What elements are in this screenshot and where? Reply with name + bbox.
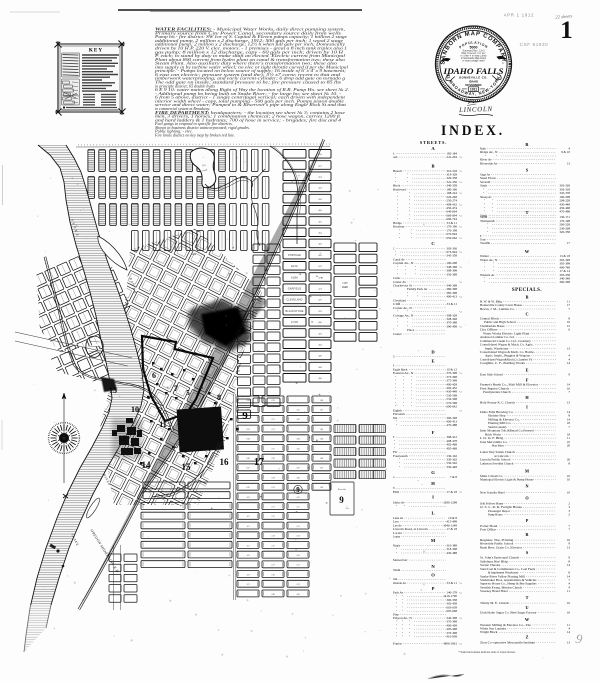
svg-text:650-662: 650-662 [446, 236, 457, 240]
svg-text:U: U [525, 605, 528, 610]
svg-text:1911: 1911 [470, 88, 477, 92]
svg-text:Riverside: Riverside [337, 489, 346, 491]
svg-text:5: 5 [186, 389, 190, 397]
svg-text:CSF 91930: CSF 91930 [520, 42, 549, 47]
svg-text:Map Insured, Inc per: Map Insured, Inc per [462, 52, 486, 55]
svg-text:17 & 18: 17 & 18 [447, 490, 458, 494]
svg-text:7 & 8: 7 & 8 [450, 475, 458, 479]
svg-text:161: 161 [320, 410, 323, 412]
svg-text:15: 15 [182, 462, 192, 472]
svg-text:Pump House: Pump House [488, 513, 503, 517]
svg-text:14: 14 [142, 460, 152, 470]
svg-text:T: T [526, 210, 529, 215]
svg-text:330-448: 330-448 [446, 465, 457, 469]
svg-text:B: B [526, 295, 529, 300]
svg-text:Fire limits district on key ma: Fire limits district on key map by broke… [154, 133, 235, 137]
svg-text:7: 7 [174, 384, 178, 393]
svg-text:C: C [525, 312, 528, 317]
svg-text:G: G [431, 470, 435, 475]
svg-text:F: F [432, 430, 435, 435]
svg-text:1290-1298: 1290-1298 [443, 501, 457, 505]
svg-text:9: 9 [339, 495, 344, 505]
svg-text:Riverside Av: Riverside Av [480, 161, 498, 165]
svg-text:in Ride Linkage Team: in Ride Linkage Team [463, 61, 485, 63]
svg-text:Wright Block: Wright Block [480, 630, 498, 634]
svg-text:8: 8 [217, 393, 221, 402]
svg-text:910-938: 910-938 [446, 635, 457, 639]
svg-text:20: 20 [567, 444, 571, 448]
svg-text:LINCOLN: LINCOLN [458, 106, 493, 114]
svg-text:13: 13 [567, 545, 571, 549]
svg-text:13: 13 [567, 640, 571, 644]
svg-text:Poplar: Poplar [393, 641, 403, 645]
svg-text:Fourteenth: Fourteenth [393, 454, 408, 458]
svg-text:16: 16 [220, 457, 230, 467]
svg-text:5000: 5000 [470, 45, 478, 49]
svg-text:Custer: Custer [393, 332, 403, 336]
svg-text:INDEX.: INDEX. [441, 123, 505, 139]
svg-text:14: 14 [567, 563, 571, 567]
svg-text:N: N [525, 484, 528, 489]
svg-text:17: 17 [254, 457, 264, 468]
svg-text:1: 1 [560, 17, 573, 44]
svg-text:Twelfth: Twelfth [480, 241, 491, 245]
svg-text:W: W [525, 249, 530, 254]
svg-text:405-468: 405-468 [446, 446, 457, 450]
svg-text:ALBA: ALBA [291, 276, 298, 279]
svg-text:PORTAGE: PORTAGE [288, 254, 301, 257]
svg-text:Tenth: Tenth [393, 568, 401, 572]
svg-text:Municipal Electric Light & Pum: Municipal Electric Light & Pump House [480, 478, 534, 482]
svg-text:Boulevard: Boulevard [393, 187, 406, 191]
svg-text:Rush Bros. Grain Co. Elevator: Rush Bros. Grain Co. Elevator [480, 545, 523, 549]
svg-text:BLACKSTONE: BLACKSTONE [285, 310, 303, 313]
svg-text:Sweeney Brand Hotel: Sweeney Brand Hotel [480, 589, 508, 593]
svg-text:IDAHO FALLS: IDAHO FALLS [442, 66, 503, 76]
svg-text:in Summarize Map Comp: in Summarize Map Comp [461, 57, 487, 60]
svg-text:10: 10 [131, 405, 139, 414]
svg-text:Holy Rosary R. C. Church: Holy Rosary R. C. Church [480, 401, 515, 405]
svg-text:CLEVELAND: CLEVELAND [286, 299, 302, 302]
svg-text:P: P [526, 518, 529, 523]
svg-text:131: 131 [271, 507, 274, 509]
svg-text:345-358: 345-358 [446, 254, 457, 258]
svg-text:H: H [431, 481, 435, 486]
svg-text:390-408: 390-408 [446, 324, 457, 328]
svg-text:Place: Place [407, 328, 415, 332]
svg-text:13: 13 [567, 401, 571, 405]
svg-text:470-498: 470-498 [559, 210, 570, 214]
svg-text:17 & 18: 17 & 18 [447, 527, 458, 531]
svg-text:Lomax: Lomax [393, 535, 400, 539]
svg-text:241-294: 241-294 [446, 155, 457, 159]
svg-text:Lutheran Swedish Church: Lutheran Swedish Church [480, 461, 514, 465]
svg-text:Zion Co-operative Mercantile I: Zion Co-operative Mercantile Institute [480, 640, 536, 644]
svg-text:14: 14 [567, 630, 571, 634]
svg-text:APR 1 1912: APR 1 1912 [504, 13, 535, 18]
svg-text:NOVEMBER: NOVEMBER [465, 83, 481, 87]
svg-text:E: E [526, 368, 529, 373]
svg-text:Shoup Av: Shoup Av [480, 195, 492, 199]
svg-text:Trinity M. E. Church: Trinity M. E. Church [480, 601, 509, 605]
svg-text:33 & 11: 33 & 11 [447, 581, 458, 585]
svg-text:11: 11 [159, 420, 167, 429]
svg-text:M: M [525, 469, 529, 474]
svg-text:12: 12 [118, 434, 126, 443]
svg-text:Ash: Ash [393, 155, 398, 159]
svg-text:C: C [431, 241, 434, 246]
svg-text:Western Av: Western Av [480, 273, 495, 277]
svg-text:SPECIALS.: SPECIALS. [512, 288, 542, 293]
svg-text:ELVA: ELVA [291, 265, 298, 268]
svg-text:16: 16 [567, 611, 571, 615]
svg-text:CITY: CITY [342, 282, 348, 285]
svg-text:M: M [431, 538, 436, 543]
svg-text:GARFIELD: GARFIELD [288, 288, 302, 291]
svg-text:400-413: 400-413 [446, 295, 457, 299]
svg-text:360-398: 360-398 [559, 280, 570, 284]
svg-text:16: 16 [567, 601, 571, 605]
svg-text:6: 6 [152, 371, 156, 380]
svg-text:151: 151 [296, 507, 299, 509]
svg-text:430-488: 430-488 [446, 551, 457, 555]
svg-text:E: E [431, 359, 434, 364]
svg-text:Hill: Hill [393, 490, 399, 494]
svg-text:Presbyterian Church: Presbyterian Church [483, 390, 511, 394]
svg-text:Oneida Av: Oneida Av [393, 581, 406, 585]
svg-text:13: 13 [567, 346, 571, 350]
svg-text:11: 11 [567, 589, 570, 593]
svg-text:B: B [431, 164, 434, 169]
svg-text:9: 9 [242, 410, 248, 422]
svg-text:9 & 10: 9 & 10 [561, 150, 570, 154]
svg-text:10: 10 [567, 491, 571, 495]
svg-text:New Scandia Hotel: New Scandia Hotel [480, 491, 505, 495]
svg-text:PARK: PARK [341, 286, 348, 289]
svg-text:Maxwell Av: Maxwell Av [393, 558, 408, 562]
svg-text:KEY: KEY [89, 48, 103, 54]
svg-text:141: 141 [296, 409, 299, 412]
svg-text:13: 13 [109, 386, 117, 395]
svg-text:L: L [431, 511, 434, 516]
svg-text:33 & 11: 33 & 11 [447, 302, 458, 306]
svg-text:P: P [432, 586, 435, 591]
svg-text:356-368: 356-368 [446, 272, 457, 276]
svg-text:14: 14 [567, 361, 571, 365]
svg-text:LYON: LYON [291, 321, 298, 324]
svg-text:320-358: 320-358 [559, 230, 570, 234]
svg-text:Post Office: Post Office [480, 528, 496, 532]
svg-text:East Side School: East Side School [480, 373, 503, 377]
svg-text:* Italicized names indicate si: * Italicized names indicate side of stre… [458, 650, 516, 654]
svg-text:Utah Idaho Sugar Co. Beet Suga: Utah Idaho Sugar Co. Beet Sugar Factory [480, 611, 537, 615]
svg-text:13: 13 [567, 161, 571, 165]
svg-text:10: 10 [567, 478, 571, 482]
svg-text:17: 17 [567, 241, 571, 245]
svg-text:600-642: 600-642 [446, 405, 457, 409]
svg-text:Z: Z [526, 635, 529, 640]
svg-text:T: T [526, 595, 529, 600]
svg-text:Hay Barn: Hay Barn [492, 444, 504, 448]
svg-text:O: O [431, 573, 435, 578]
svg-text:605-668: 605-668 [446, 609, 457, 613]
svg-text:STREETS.: STREETS. [420, 140, 447, 145]
svg-text:9: 9 [296, 486, 300, 494]
svg-text:1806-1861: 1806-1861 [443, 641, 457, 645]
svg-text:470-488: 470-488 [446, 423, 457, 427]
svg-text:I: I [432, 495, 434, 500]
